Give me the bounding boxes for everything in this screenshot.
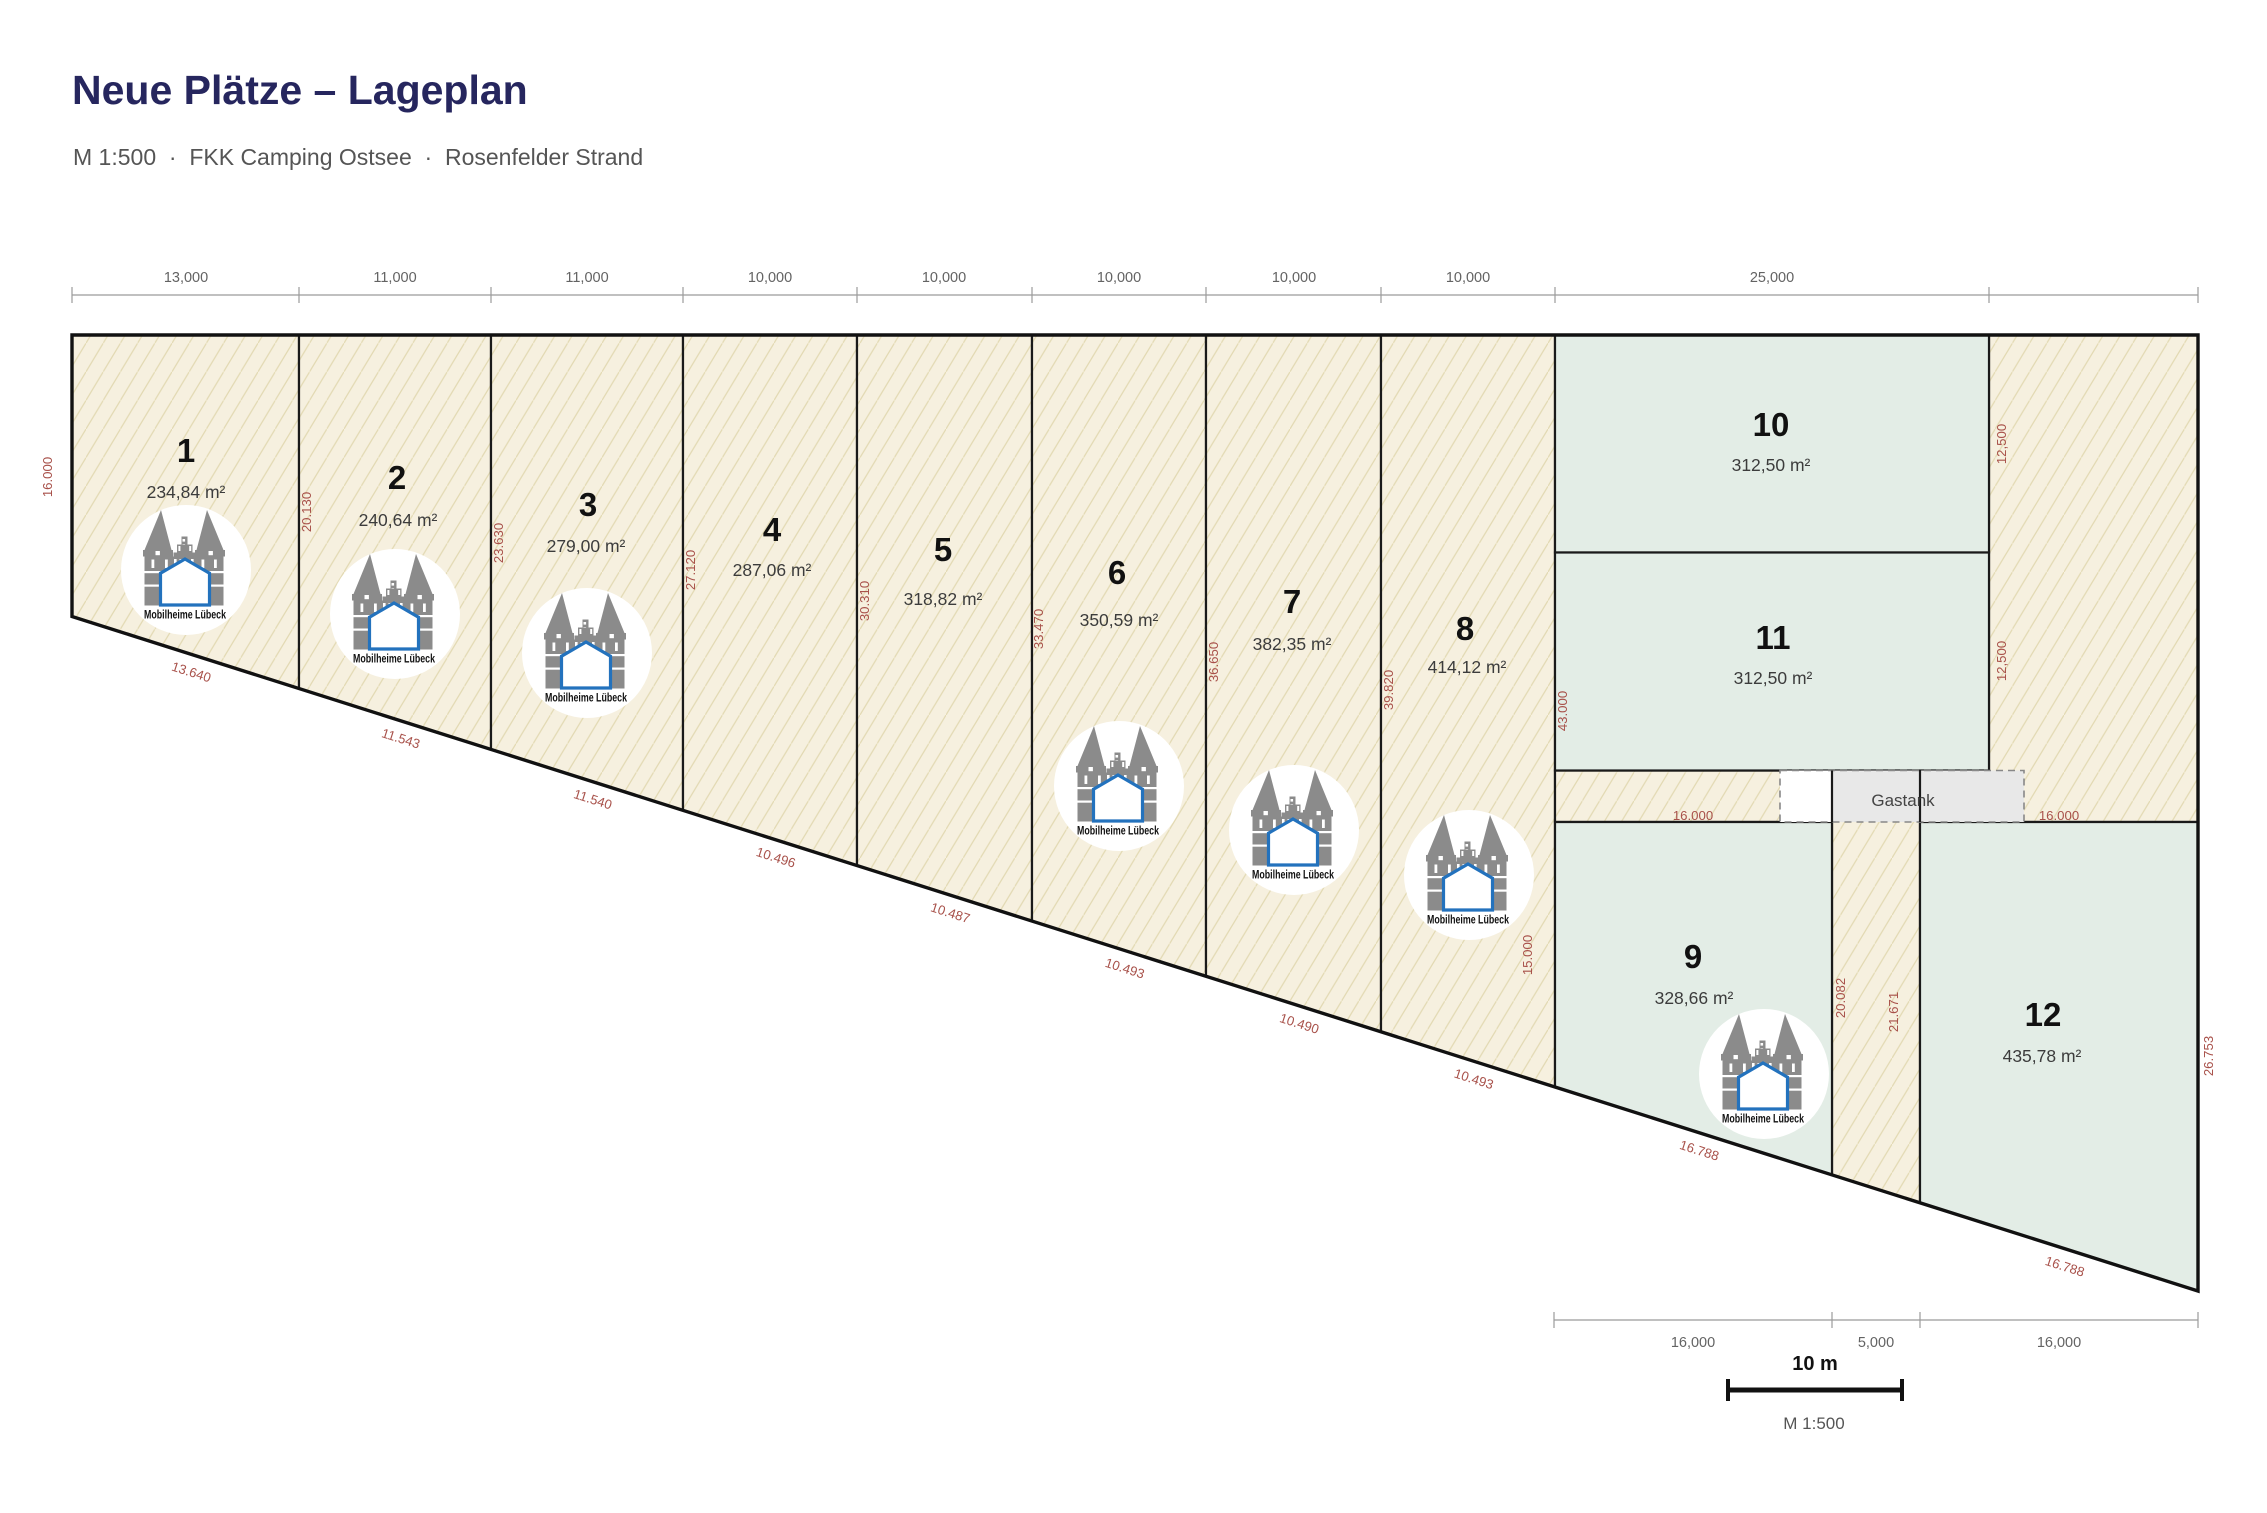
- svg-text:382,35 m²: 382,35 m²: [1253, 634, 1332, 654]
- svg-text:26.753: 26.753: [2201, 1036, 2216, 1076]
- svg-text:20.082: 20.082: [1833, 978, 1848, 1018]
- svg-text:7: 7: [1283, 583, 1301, 620]
- svg-text:4: 4: [763, 511, 782, 548]
- svg-text:10.490: 10.490: [1278, 1010, 1321, 1036]
- svg-text:11.540: 11.540: [572, 786, 614, 812]
- svg-text:12,500: 12,500: [1994, 424, 2009, 464]
- svg-text:10 m: 10 m: [1792, 1353, 1838, 1375]
- svg-text:M 1:500 · FKK Camping Ostsee: M 1:500 · FKK Camping Ostsee · Rosenfeld…: [73, 144, 643, 170]
- svg-text:3: 3: [579, 486, 597, 523]
- svg-text:10,000: 10,000: [922, 270, 966, 286]
- svg-text:13.640: 13.640: [170, 659, 213, 685]
- svg-text:240,64 m²: 240,64 m²: [359, 510, 438, 530]
- svg-text:10,000: 10,000: [1272, 270, 1316, 286]
- svg-text:Neue Plätze – Lageplan: Neue Plätze – Lageplan: [72, 67, 528, 113]
- svg-text:6: 6: [1108, 554, 1126, 591]
- svg-text:11,000: 11,000: [373, 270, 416, 286]
- svg-text:312,50 m²: 312,50 m²: [1734, 668, 1813, 688]
- svg-text:10.493: 10.493: [1103, 955, 1146, 981]
- svg-text:12,500: 12,500: [1994, 641, 2009, 681]
- svg-text:13,000: 13,000: [164, 270, 208, 286]
- svg-text:435,78 m²: 435,78 m²: [2003, 1046, 2082, 1066]
- svg-text:27.120: 27.120: [683, 550, 698, 590]
- svg-text:12: 12: [2025, 996, 2062, 1033]
- svg-text:23.630: 23.630: [491, 523, 506, 563]
- svg-text:16.000: 16.000: [1673, 808, 1713, 823]
- svg-text:43.000: 43.000: [1555, 691, 1570, 731]
- svg-text:5: 5: [934, 531, 952, 568]
- svg-text:33.470: 33.470: [1031, 609, 1046, 649]
- svg-text:11.543: 11.543: [380, 725, 422, 751]
- svg-text:20.130: 20.130: [299, 492, 314, 532]
- svg-text:1: 1: [177, 432, 195, 469]
- svg-text:16.000: 16.000: [40, 457, 55, 497]
- svg-text:5,000: 5,000: [1858, 1335, 1894, 1351]
- svg-text:11: 11: [1756, 619, 1791, 656]
- svg-text:16.788: 16.788: [1678, 1137, 1721, 1163]
- svg-text:16,000: 16,000: [1671, 1335, 1715, 1351]
- svg-text:16.788: 16.788: [2043, 1253, 2086, 1279]
- svg-text:10.496: 10.496: [754, 844, 797, 870]
- svg-text:287,06 m²: 287,06 m²: [733, 560, 812, 580]
- svg-text:10.487: 10.487: [929, 900, 972, 926]
- svg-text:279,00 m²: 279,00 m²: [547, 536, 626, 556]
- svg-text:318,82 m²: 318,82 m²: [904, 589, 983, 609]
- svg-text:312,50 m²: 312,50 m²: [1732, 455, 1811, 475]
- svg-text:9: 9: [1684, 938, 1702, 975]
- svg-text:16,000: 16,000: [2037, 1335, 2081, 1351]
- svg-text:M 1:500: M 1:500: [1783, 1414, 1844, 1433]
- svg-text:10,000: 10,000: [1097, 270, 1141, 286]
- svg-text:350,59 m²: 350,59 m²: [1080, 610, 1159, 630]
- svg-text:328,66 m²: 328,66 m²: [1655, 988, 1734, 1008]
- svg-text:16.000: 16.000: [2039, 808, 2079, 823]
- svg-text:10,000: 10,000: [748, 270, 792, 286]
- svg-text:15.000: 15.000: [1520, 935, 1535, 975]
- svg-text:10.493: 10.493: [1452, 1066, 1495, 1092]
- svg-text:10: 10: [1753, 406, 1790, 443]
- svg-text:10,000: 10,000: [1446, 270, 1490, 286]
- svg-text:25,000: 25,000: [1750, 270, 1794, 286]
- svg-text:11,000: 11,000: [565, 270, 608, 286]
- svg-text:8: 8: [1456, 610, 1474, 647]
- svg-text:234,84 m²: 234,84 m²: [147, 482, 226, 502]
- svg-text:2: 2: [388, 459, 406, 496]
- svg-text:Gastank: Gastank: [1871, 791, 1935, 810]
- svg-text:39.820: 39.820: [1381, 670, 1396, 710]
- svg-text:414,12 m²: 414,12 m²: [1428, 657, 1507, 677]
- svg-text:30.310: 30.310: [857, 581, 872, 621]
- svg-text:36.650: 36.650: [1206, 642, 1221, 682]
- svg-text:21.671: 21.671: [1886, 992, 1901, 1032]
